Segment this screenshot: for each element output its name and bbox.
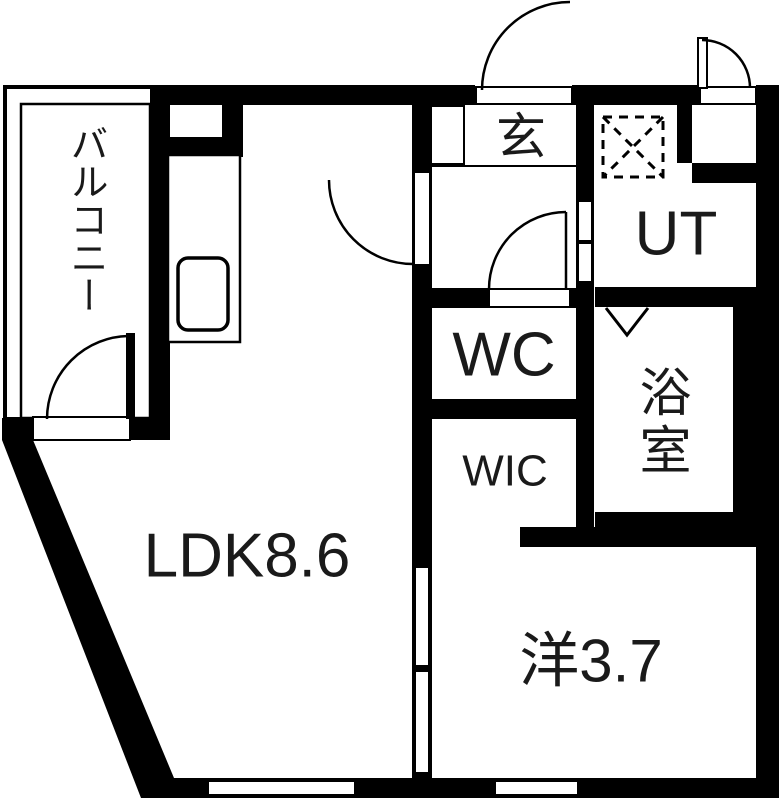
wall-top-mid [572, 85, 700, 105]
room-label-entrance: 玄 [496, 109, 546, 165]
wall-balcony-bottom-left [2, 418, 33, 440]
room-label-ldk: LDK8.6 [144, 522, 351, 591]
entrance-door-arc [482, 2, 570, 90]
room-label-bath: 浴室 [631, 365, 689, 481]
room-label-wic: WIC [462, 447, 548, 496]
wall-utility-bottom [595, 287, 756, 307]
ldk-door-opening [414, 172, 430, 265]
bath-folding-door [606, 308, 648, 335]
entrance-door-leaf-closed [476, 87, 572, 104]
balcony-door-opening [33, 417, 130, 440]
balcony-door-arc [47, 336, 130, 419]
wall-bath-right [733, 307, 756, 513]
wall-bedroom-top [520, 527, 758, 547]
utility-sliding-panel-1 [578, 201, 592, 241]
wall-trunk-divider [677, 103, 692, 163]
room-label-utility: UT [635, 200, 718, 269]
wc-door-arc [489, 212, 566, 289]
trunk-door-leaf [698, 38, 707, 88]
floor-plan: バルコニー 玄 UT WC 浴室 WIC LDK8.6 洋3.7 [0, 0, 779, 800]
bedroom-sliding-panel-1 [415, 567, 429, 666]
wc-door-opening [489, 289, 570, 307]
shoe-box [431, 106, 464, 164]
utility-sliding-panel-2 [578, 243, 592, 282]
ldk-window [208, 781, 355, 795]
trunk-door-opening [700, 87, 756, 104]
wall-top-left [152, 85, 475, 105]
bedroom-window [495, 781, 578, 795]
wall-diagonal [2, 440, 174, 798]
pipe-space [170, 105, 222, 137]
balcony-door-leaf [126, 333, 135, 419]
trunk-door-arc [702, 40, 750, 88]
room-label-bedroom: 洋3.7 [519, 628, 662, 695]
bedroom-sliding-panel-2 [415, 671, 429, 773]
room-label-toilet: WC [452, 321, 555, 390]
wall-balcony-bottom-right [128, 418, 170, 440]
wall-right [756, 85, 779, 798]
wall-trunk-bottom [692, 163, 756, 183]
room-label-balcony: バルコニー [64, 124, 106, 314]
wall-hall-utility [576, 105, 594, 527]
wall-wc-wic-divider [432, 399, 577, 419]
ldk-door-arc [329, 180, 413, 264]
floor-plan-canvas: バルコニー 玄 UT WC 浴室 WIC LDK8.6 洋3.7 [0, 0, 779, 800]
